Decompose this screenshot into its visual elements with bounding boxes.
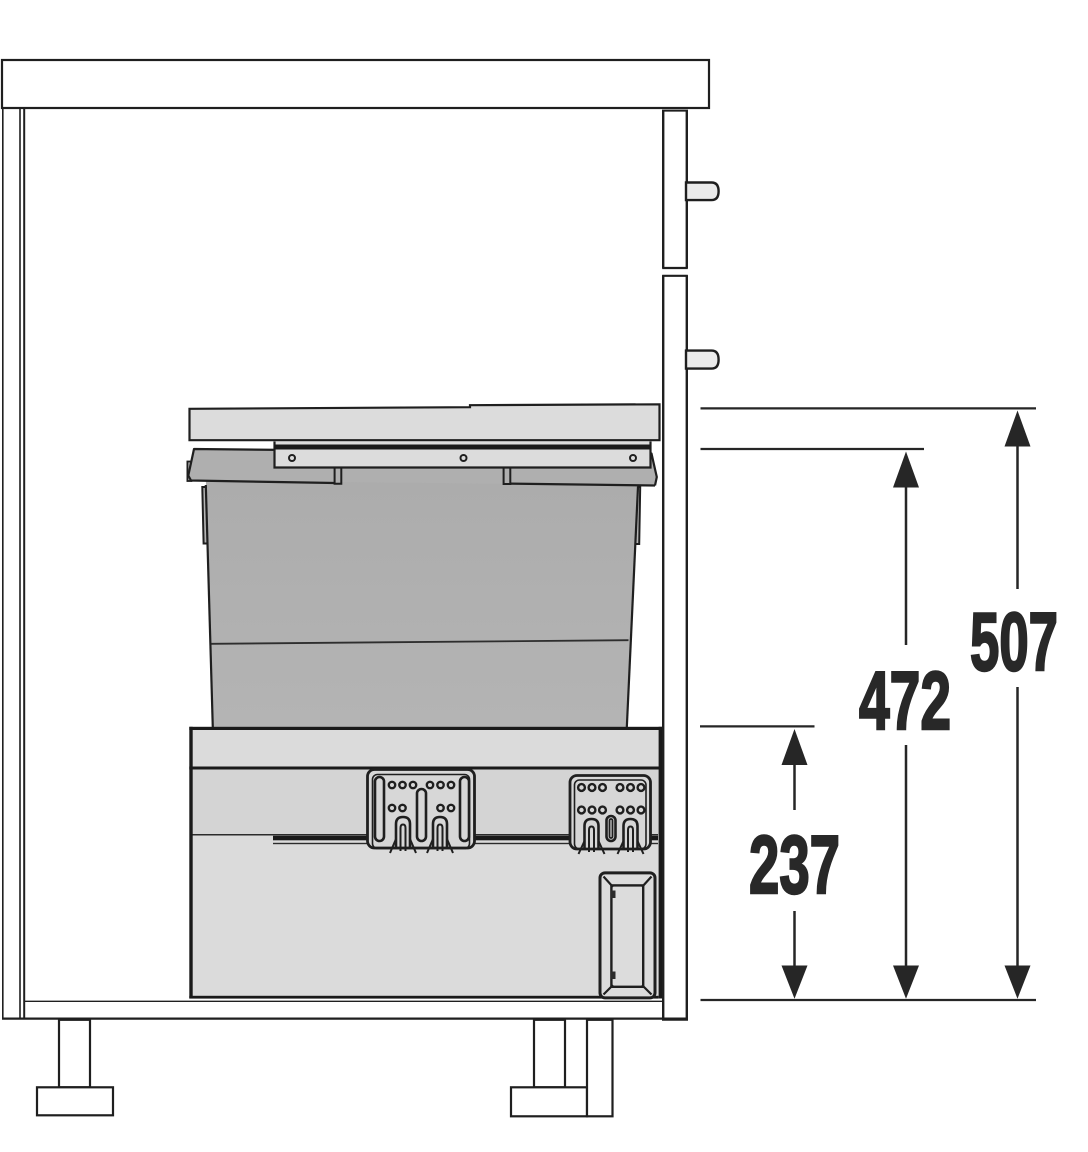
svg-text:507: 507 xyxy=(970,595,1058,688)
svg-text:472: 472 xyxy=(859,654,951,747)
svg-text:237: 237 xyxy=(749,818,840,911)
